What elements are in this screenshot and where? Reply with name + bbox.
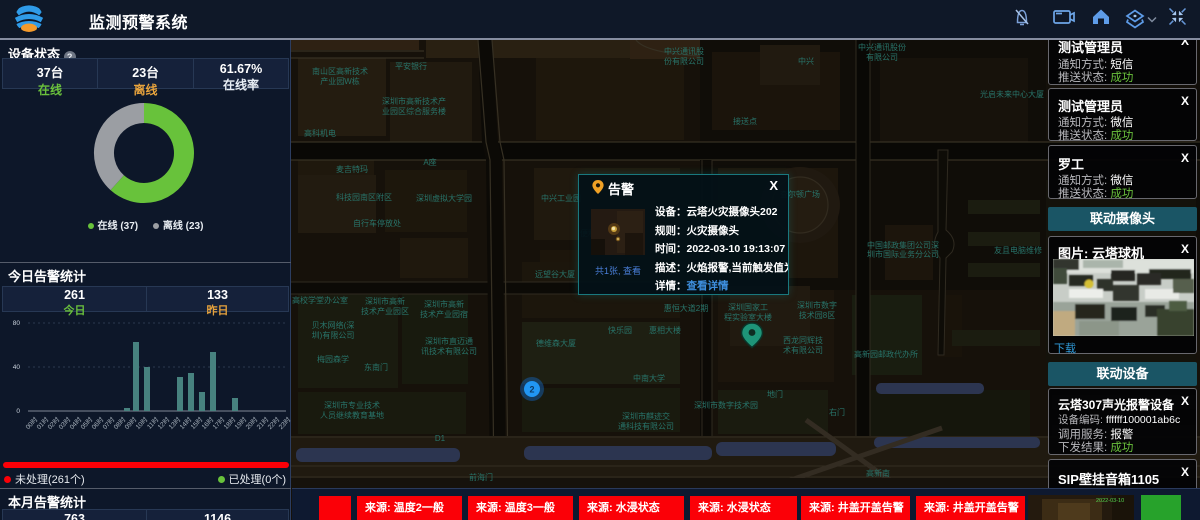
svg-text:中南大学: 中南大学: [633, 373, 665, 383]
svg-text:德维森大厦: 德维森大厦: [536, 338, 576, 348]
svg-text:2022-03-10: 2022-03-10: [1096, 498, 1124, 504]
svg-text:深圳市麒迹交: 深圳市麒迹交: [622, 411, 670, 421]
svg-text:通科技有限公司: 通科技有限公司: [618, 421, 674, 431]
svg-text:南山区高新技术: 南山区高新技术: [312, 66, 368, 76]
svg-text:40: 40: [13, 364, 21, 371]
svg-text:深圳虚拟大学园: 深圳虚拟大学园: [416, 193, 472, 203]
svg-text:中国邮政集团公司深: 中国邮政集团公司深: [867, 240, 939, 250]
svg-text:深圳市高新技术产: 深圳市高新技术产: [382, 96, 446, 106]
svg-text:麦吉特玛: 麦吉特玛: [336, 164, 368, 174]
svg-text:自行车停放处: 自行车停放处: [353, 218, 401, 228]
svg-text:人员继续教育基地: 人员继续教育基地: [320, 410, 384, 420]
svg-text:深圳市数字技术园: 深圳市数字技术园: [694, 400, 758, 410]
svg-text:前海门: 前海门: [469, 472, 493, 482]
svg-text:讯技术有限公司: 讯技术有限公司: [421, 346, 477, 356]
svg-text:中兴工业园: 中兴工业园: [541, 193, 581, 203]
svg-text:技术园8区: 技术园8区: [799, 310, 835, 320]
svg-text:业园区综合服务楼: 业园区综合服务楼: [382, 106, 446, 116]
svg-text:80: 80: [13, 320, 21, 327]
svg-text:高科机电: 高科机电: [304, 128, 336, 138]
svg-text:梅园森学: 梅园森学: [317, 354, 349, 364]
svg-text:产业园W栋: 产业园W栋: [320, 76, 360, 86]
svg-text:中兴: 中兴: [798, 56, 814, 66]
svg-text:中兴通讯股: 中兴通讯股: [664, 46, 704, 56]
svg-text:圳市国际业务分公司: 圳市国际业务分公司: [867, 249, 939, 259]
svg-text:右门: 右门: [829, 407, 845, 417]
svg-text:0: 0: [16, 408, 20, 415]
svg-text:技术产业园区: 技术产业园区: [361, 306, 409, 316]
svg-text:光启未来中心大厦: 光启未来中心大厦: [980, 89, 1044, 99]
svg-text:深圳市高新: 深圳市高新: [365, 296, 405, 306]
svg-text:有限公司: 有限公司: [866, 52, 898, 62]
svg-text:深圳市高新: 深圳市高新: [424, 299, 464, 309]
svg-text:远望谷大厦: 远望谷大厦: [535, 269, 575, 279]
svg-text:深圳市直迈通: 深圳市直迈通: [425, 336, 473, 346]
svg-text:科技园南区附区: 科技园南区附区: [336, 192, 392, 202]
svg-text:友且电脑维修: 友且电脑维修: [994, 245, 1042, 255]
svg-text:惠相大楼: 惠相大楼: [649, 325, 681, 335]
svg-text:惠恒大道2期: 惠恒大道2期: [664, 303, 708, 313]
svg-text:份有限公司: 份有限公司: [664, 56, 704, 66]
svg-text:地门: 地门: [767, 389, 783, 399]
svg-text:深圳国家工: 深圳国家工: [728, 302, 768, 312]
svg-text:接送点: 接送点: [733, 116, 757, 126]
svg-text:深圳市数字: 深圳市数字: [797, 300, 837, 310]
svg-text:程实验室大楼: 程实验室大楼: [724, 312, 772, 322]
svg-text:东南门: 东南门: [364, 362, 388, 372]
svg-text:深圳市专业技术: 深圳市专业技术: [324, 400, 380, 410]
svg-text:技术产业园宿: 技术产业园宿: [420, 309, 468, 319]
svg-text:平安银行: 平安银行: [395, 61, 427, 71]
svg-text:快乐园: 快乐园: [608, 325, 632, 335]
svg-text:D1: D1: [435, 434, 446, 443]
svg-text:高新南: 高新南: [866, 468, 890, 478]
svg-text:高校学堂办公室: 高校学堂办公室: [292, 295, 348, 305]
svg-text:贝木网络(深: 贝木网络(深: [312, 320, 355, 330]
svg-text:西龙同辉技: 西龙同辉技: [783, 335, 823, 345]
svg-text:A座: A座: [423, 157, 436, 167]
svg-text:2: 2: [529, 385, 534, 395]
svg-text:高新园邮政代办所: 高新园邮政代办所: [854, 349, 918, 359]
svg-text:圳)有限公司: 圳)有限公司: [312, 330, 355, 340]
svg-text:中兴通讯股份: 中兴通讯股份: [858, 42, 906, 52]
svg-text:术有限公司: 术有限公司: [783, 345, 823, 355]
